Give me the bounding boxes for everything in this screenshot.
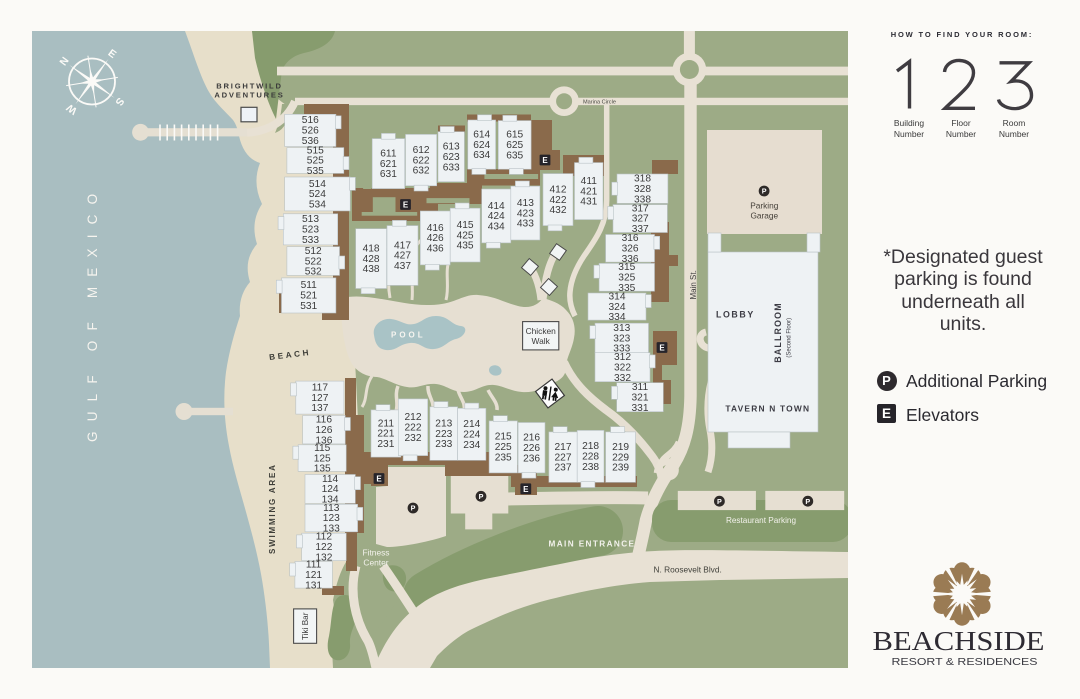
svg-text:RESORT & RESIDENCES: RESORT & RESIDENCES: [892, 657, 1038, 668]
svg-text:614624634: 614624634: [473, 129, 490, 161]
svg-text:Restaurant Parking: Restaurant Parking: [726, 516, 797, 525]
svg-text:413423433: 413423433: [517, 198, 534, 230]
svg-text:215225235: 215225235: [495, 432, 512, 464]
svg-text:613623633: 613623633: [443, 142, 460, 174]
svg-text:E: E: [523, 485, 529, 494]
svg-text:314324334: 314324334: [609, 291, 626, 323]
svg-text:BRIGHTWILDADVENTURES: BRIGHTWILDADVENTURES: [214, 82, 284, 100]
svg-text:216226236: 216226236: [523, 433, 540, 465]
svg-text:ParkingGarage: ParkingGarage: [750, 201, 779, 221]
svg-text:516526536: 516526536: [302, 115, 319, 147]
svg-text:217227237: 217227237: [555, 442, 572, 474]
svg-text:BALLROOM: BALLROOM: [773, 302, 783, 362]
svg-text:Main St.: Main St.: [689, 270, 698, 299]
svg-text:113123133: 113123133: [323, 503, 340, 535]
svg-text:318328338: 318328338: [634, 174, 651, 206]
svg-text:416426436: 416426436: [427, 223, 444, 255]
svg-text:214224234: 214224234: [463, 419, 480, 451]
svg-text:316326336: 316326336: [622, 233, 639, 265]
svg-text:414424434: 414424434: [488, 201, 505, 233]
svg-text:E: E: [542, 156, 548, 165]
svg-text:P: P: [479, 492, 484, 501]
svg-text:211221231: 211221231: [377, 418, 394, 450]
svg-text:P: P: [411, 504, 416, 513]
svg-text:411421431: 411421431: [580, 176, 597, 208]
svg-text:E: E: [376, 475, 382, 484]
svg-text:315325335: 315325335: [618, 262, 635, 294]
svg-text:218228238: 218228238: [582, 441, 599, 473]
svg-text:P: P: [717, 497, 722, 506]
svg-text:114124134: 114124134: [322, 474, 339, 506]
svg-text:LOBBY: LOBBY: [716, 309, 755, 319]
svg-text:(Second Floor): (Second Floor): [787, 318, 793, 358]
svg-text:213223233: 213223233: [435, 418, 452, 450]
svg-text:415425435: 415425435: [457, 220, 474, 252]
svg-text:317327337: 317327337: [632, 203, 649, 235]
svg-text:512522532: 512522532: [305, 246, 322, 278]
svg-text:116126136: 116126136: [315, 415, 332, 447]
svg-text:FitnessCenter: FitnessCenter: [363, 548, 390, 568]
svg-text:418428438: 418428438: [363, 243, 380, 275]
svg-text:SWIMMING AREA: SWIMMING AREA: [268, 463, 277, 554]
svg-text:P: P: [762, 187, 767, 196]
svg-text:612622632: 612622632: [413, 145, 430, 177]
svg-text:412422432: 412422432: [550, 184, 567, 216]
svg-text:511521531: 511521531: [300, 280, 317, 312]
svg-text:111121131: 111121131: [305, 560, 322, 592]
svg-text:611621631: 611621631: [380, 148, 397, 180]
svg-text:312322332: 312322332: [614, 352, 631, 384]
svg-text:615625635: 615625635: [506, 130, 523, 162]
svg-text:513523533: 513523533: [302, 214, 319, 246]
svg-text:212222232: 212222232: [405, 412, 422, 444]
svg-text:TAVERN N TOWN: TAVERN N TOWN: [725, 404, 810, 414]
svg-text:POOL: POOL: [391, 331, 426, 340]
svg-text:E: E: [659, 344, 665, 353]
svg-text:Marina Circle: Marina Circle: [583, 99, 616, 105]
svg-text:115125135: 115125135: [314, 443, 331, 475]
svg-text:514524534: 514524534: [309, 179, 326, 211]
svg-text:BEACHSIDE: BEACHSIDE: [873, 625, 1045, 656]
svg-text:E: E: [403, 201, 409, 210]
svg-text:MAIN ENTRANCE: MAIN ENTRANCE: [549, 539, 636, 548]
svg-text:GULF OF MEXICO: GULF OF MEXICO: [85, 184, 100, 442]
svg-text:117127137: 117127137: [311, 382, 328, 414]
svg-text:313323333: 313323333: [613, 323, 630, 355]
svg-text:417427437: 417427437: [394, 240, 411, 272]
svg-text:N. Roosevelt Blvd.: N. Roosevelt Blvd.: [654, 564, 722, 574]
svg-text:515525535: 515525535: [307, 145, 324, 177]
svg-text:311321331: 311321331: [632, 382, 649, 414]
svg-text:Tiki Bar: Tiki Bar: [301, 612, 310, 640]
svg-text:P: P: [805, 497, 810, 506]
svg-text:219229239: 219229239: [612, 442, 629, 474]
